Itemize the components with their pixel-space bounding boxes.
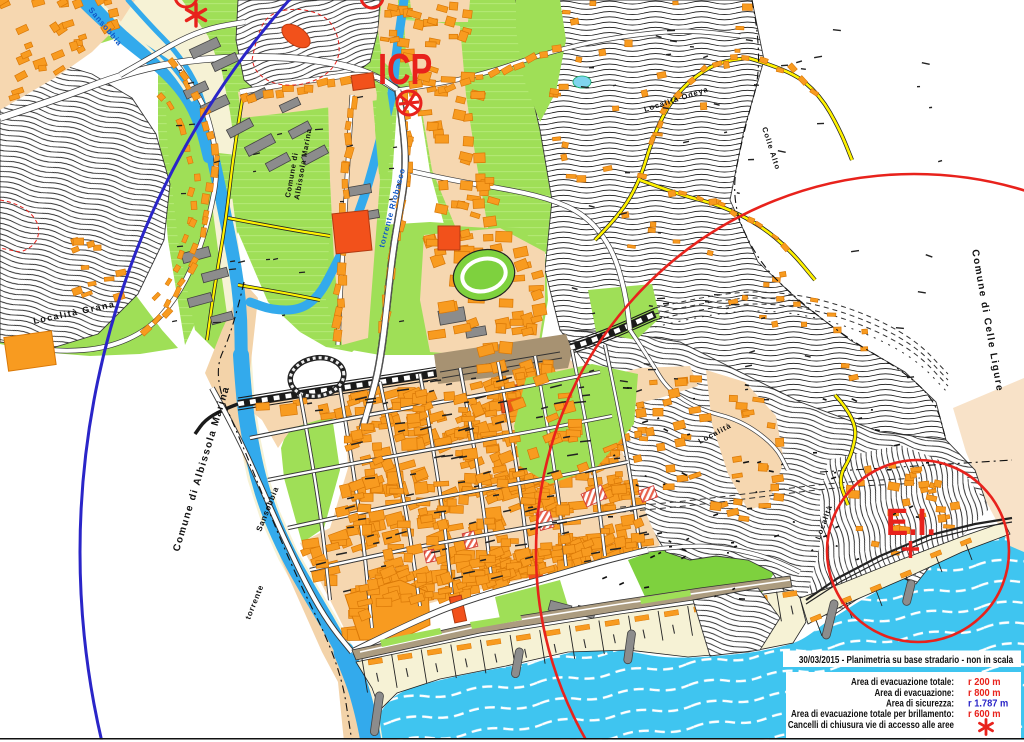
svg-text:Area di evacuazione totale:: Area di evacuazione totale: xyxy=(851,676,954,687)
svg-text:Area di sicurezza:: Area di sicurezza: xyxy=(886,698,954,709)
svg-text:E.I.: E.I. xyxy=(886,501,936,544)
svg-text:30/03/2015 - Planimetria su ba: 30/03/2015 - Planimetria su base stradar… xyxy=(799,654,1014,665)
svg-text:r 600 m: r 600 m xyxy=(968,709,1001,720)
svg-text:Area di evacuazione totale per: Area di evacuazione totale per brillamen… xyxy=(791,708,954,719)
svg-text:r 200 m: r 200 m xyxy=(968,677,1001,688)
svg-text:Cancelli di chiusura vie di ac: Cancelli di chiusura vie di accesso alle… xyxy=(788,719,954,730)
svg-text:Area di evacuazione:: Area di evacuazione: xyxy=(874,687,954,698)
svg-text:ICP: ICP xyxy=(378,45,432,94)
